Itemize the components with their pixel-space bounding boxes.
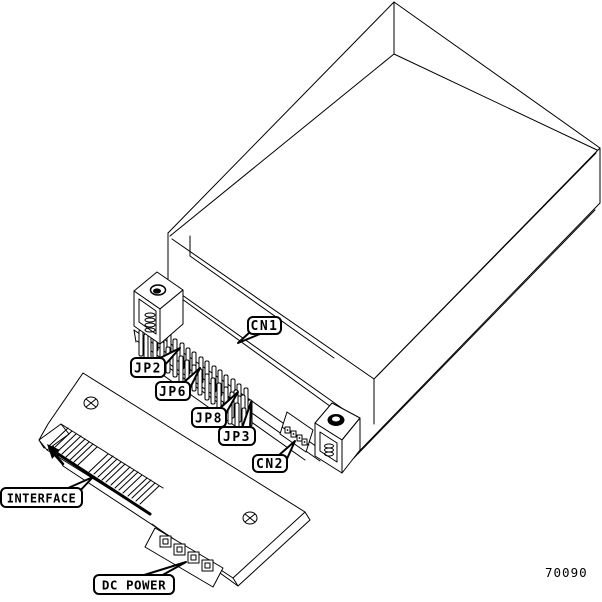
diagram-page: CN1 JP2 JP6 JP8 JP3 CN2 INTERFACE DC POW…: [0, 0, 602, 602]
figure-number: 70090: [545, 565, 588, 580]
callout-label-cn2: CN2: [256, 457, 284, 472]
right-mounting-block: [315, 403, 360, 473]
callout-label-jp8: JP8: [195, 412, 223, 427]
callout-label-jp6: JP6: [159, 385, 187, 400]
callout-label-dc-power: DC POWER: [102, 578, 166, 593]
callout-label-jp2: JP2: [134, 362, 162, 377]
exploded-view-diagram: CN1 JP2 JP6 JP8 JP3 CN2 INTERFACE DC POW…: [0, 0, 602, 602]
callout-label-cn1: CN1: [251, 319, 279, 334]
callout-label-jp3: JP3: [223, 430, 251, 445]
callout-label-interface: INTERFACE: [7, 492, 77, 506]
interface-board: [39, 373, 310, 587]
